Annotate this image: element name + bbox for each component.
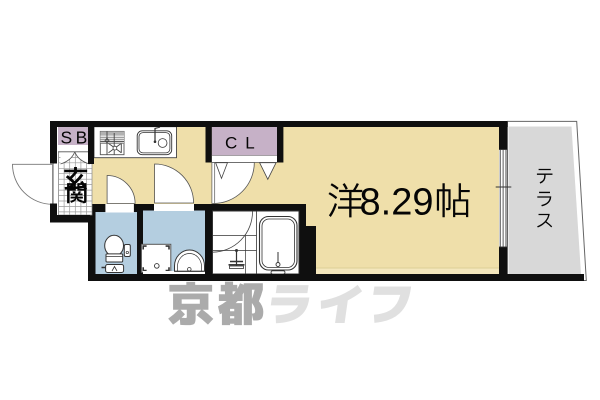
svg-text:CL: CL	[225, 134, 263, 153]
svg-text:SB: SB	[61, 128, 91, 148]
svg-text:8.29: 8.29	[360, 182, 434, 224]
